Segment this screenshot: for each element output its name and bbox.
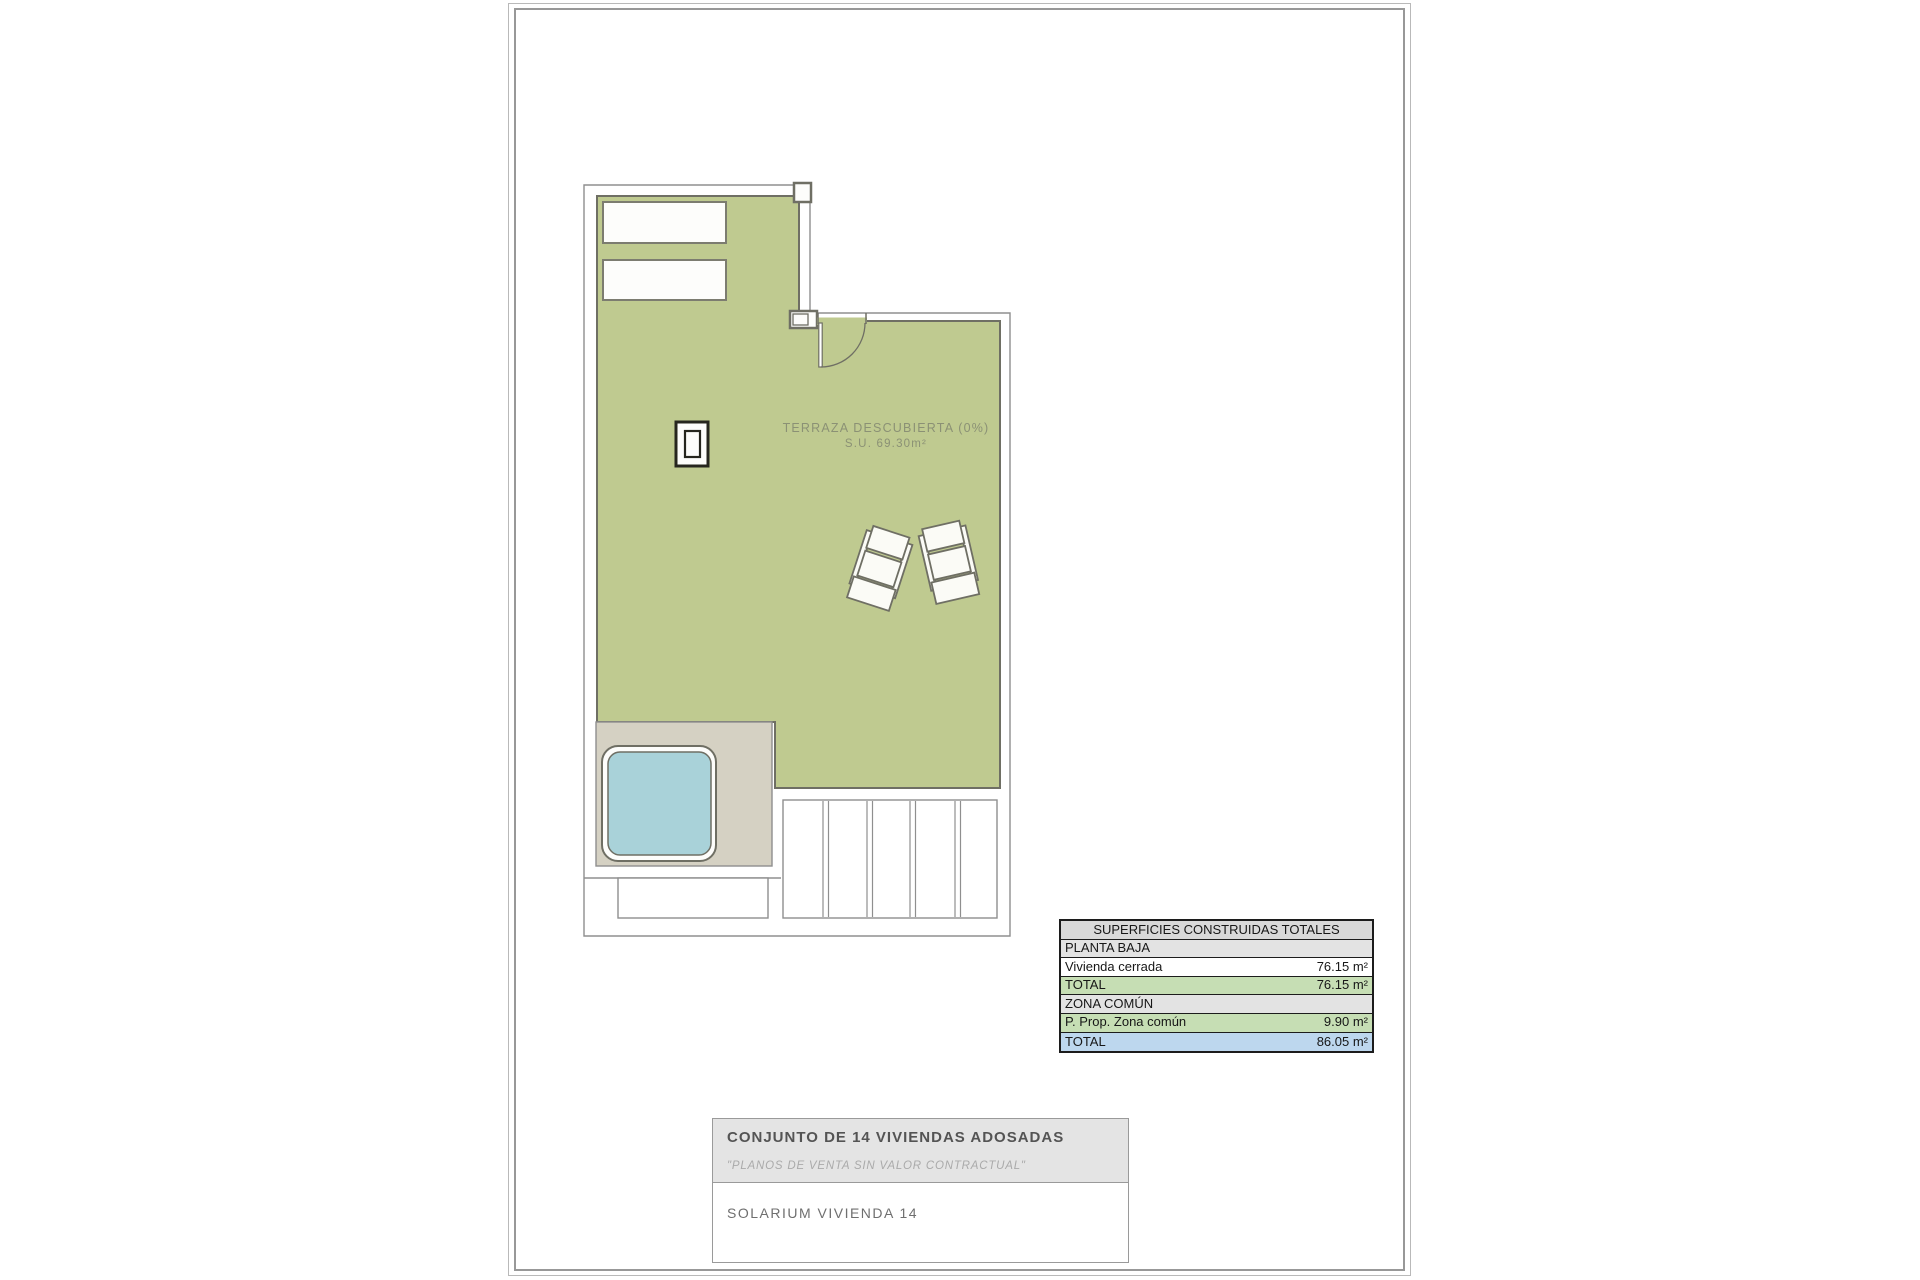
table-row: PLANTA BAJA bbox=[1061, 940, 1372, 959]
table-row: Vivienda cerrada 76.15 m² bbox=[1061, 958, 1372, 977]
pergola-slat-1 bbox=[603, 202, 726, 243]
stairs bbox=[783, 800, 997, 918]
title-block-header: CONJUNTO DE 14 VIVIENDAS ADOSADAS "PLANO… bbox=[713, 1119, 1128, 1183]
floor-plan: TERRAZA DESCUBIERTA (0%) S.U. 69.30m² bbox=[0, 0, 1920, 1280]
title-block: CONJUNTO DE 14 VIVIENDAS ADOSADAS "PLANO… bbox=[712, 1118, 1129, 1263]
chimney-top bbox=[794, 183, 811, 202]
row-label: ZONA COMÚN bbox=[1065, 995, 1153, 1014]
row-label: TOTAL bbox=[1065, 976, 1106, 995]
drawing-name: SOLARIUM VIVIENDA 14 bbox=[713, 1183, 1128, 1221]
project-title: CONJUNTO DE 14 VIVIENDAS ADOSADAS bbox=[727, 1129, 1128, 1146]
surfaces-table: SUPERFICIES CONSTRUIDAS TOTALES PLANTA B… bbox=[1059, 919, 1374, 1053]
table-row: TOTAL 86.05 m² bbox=[1061, 1033, 1372, 1052]
row-label: TOTAL bbox=[1065, 1033, 1106, 1052]
table-row: P. Prop. Zona común 9.90 m² bbox=[1061, 1014, 1372, 1033]
door-gap bbox=[817, 318, 867, 325]
table-row: ZONA COMÚN bbox=[1061, 995, 1372, 1014]
row-label: Vivienda cerrada bbox=[1065, 958, 1162, 977]
lower-left-room bbox=[618, 878, 768, 918]
row-value: 9.90 m² bbox=[1324, 1013, 1368, 1032]
row-value: 76.15 m² bbox=[1317, 976, 1368, 995]
skylight-fixture bbox=[676, 422, 708, 466]
sheet-canvas: TERRAZA DESCUBIERTA (0%) S.U. 69.30m² SU… bbox=[0, 0, 1920, 1280]
table-row: TOTAL 76.15 m² bbox=[1061, 977, 1372, 996]
surfaces-table-title: SUPERFICIES CONSTRUIDAS TOTALES bbox=[1061, 921, 1372, 940]
terrace-label-line1: TERRAZA DESCUBIERTA (0%) bbox=[783, 421, 990, 435]
row-value: 86.05 m² bbox=[1317, 1033, 1368, 1052]
terrace-label-line2: S.U. 69.30m² bbox=[845, 438, 927, 450]
row-label: P. Prop. Zona común bbox=[1065, 1013, 1186, 1032]
row-label: PLANTA BAJA bbox=[1065, 939, 1150, 958]
row-value: 76.15 m² bbox=[1317, 958, 1368, 977]
disclaimer-text: "PLANOS DE VENTA SIN VALOR CONTRACTUAL" bbox=[727, 1160, 1128, 1172]
pergola-slat-2 bbox=[603, 260, 726, 300]
pool-water bbox=[608, 752, 711, 855]
